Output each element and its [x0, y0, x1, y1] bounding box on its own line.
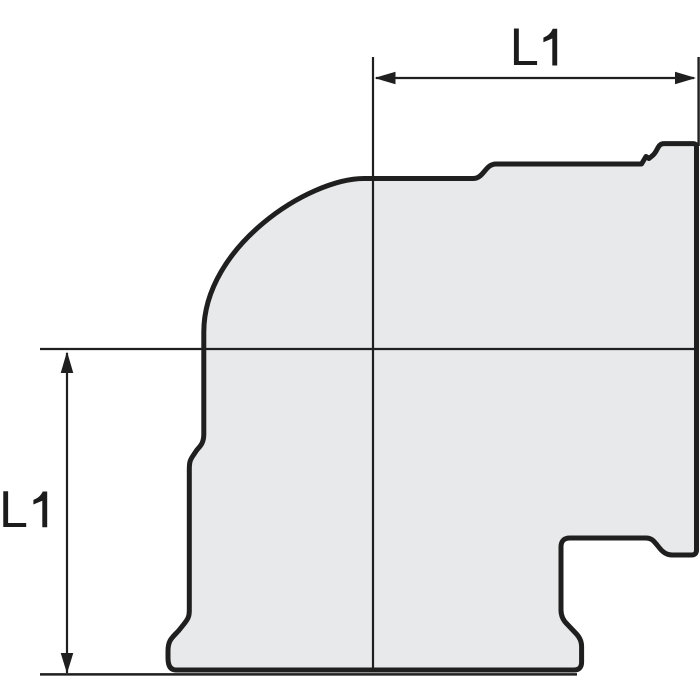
svg-text:L: L [0, 481, 28, 539]
svg-text:L: L [510, 18, 539, 77]
